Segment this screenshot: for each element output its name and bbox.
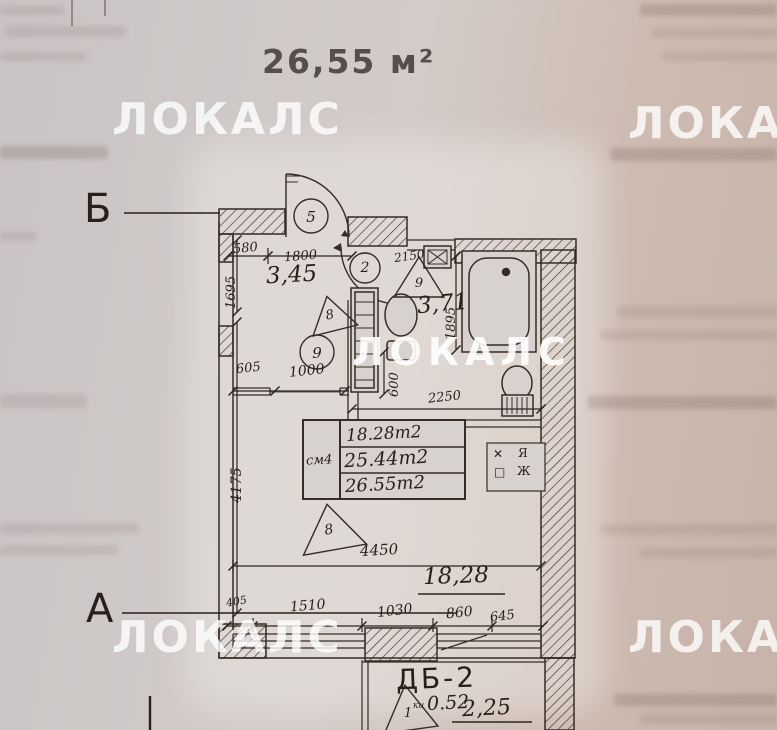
room-area-bath: 3,71 <box>416 289 469 319</box>
symbol-square: □ <box>494 465 505 479</box>
marker-circle-9-label: 9 <box>302 344 332 362</box>
dim-4450: 4450 <box>360 540 399 560</box>
watermark-bottom-left: ЛОКАЛС <box>112 612 343 663</box>
marker-circle-2-label: 2 <box>350 260 380 276</box>
watermark-bottom-right: ЛОКАЛС <box>628 612 777 663</box>
area-table-row-3: 26.55m2 <box>345 472 426 497</box>
dim-605: 605 <box>235 360 261 378</box>
watermark-top-right: ЛОКАЛС <box>628 98 777 149</box>
dim-1695: 1695 <box>224 276 239 309</box>
watermark-center: ЛОКАЛС <box>352 330 572 374</box>
dim-580: 580 <box>232 240 258 257</box>
entry-door-swing-arc <box>286 174 349 237</box>
balcony-prefix: ки <box>413 701 424 711</box>
symbol-x: ✕ <box>493 447 503 461</box>
marker-triangle-9-label: 9 <box>404 276 434 291</box>
dim-600: 600 <box>387 372 402 397</box>
area-table-row-2: 25.44m2 <box>343 446 429 472</box>
watermark-top-left: ЛОКАЛС <box>112 94 343 145</box>
balcony-value-2: 2,25 <box>461 695 511 723</box>
symbol-r: Я <box>518 446 528 460</box>
axis-label-b: Б <box>84 186 111 232</box>
room-area-hall: 3,45 <box>265 261 318 290</box>
area-table-row-1: 18.28m2 <box>346 422 423 446</box>
dim-4175: 4175 <box>229 467 245 503</box>
bathtub-drain <box>503 269 510 276</box>
floorplan-page: 26,55 м² Б А 580 1800 1695 3,45 2150 3,7… <box>0 0 777 730</box>
dim-1828: 18,28 <box>423 562 490 590</box>
area-title: 26,55 м² <box>262 42 435 81</box>
area-table-label: см4 <box>306 452 333 468</box>
axis-label-a: А <box>86 586 113 632</box>
dim-645: 645 <box>489 608 515 626</box>
dim-860: 860 <box>445 604 473 623</box>
marker-circle-5-label: 5 <box>296 208 326 226</box>
symbol-zh: Ж <box>517 464 530 478</box>
door-arrow <box>333 243 342 252</box>
